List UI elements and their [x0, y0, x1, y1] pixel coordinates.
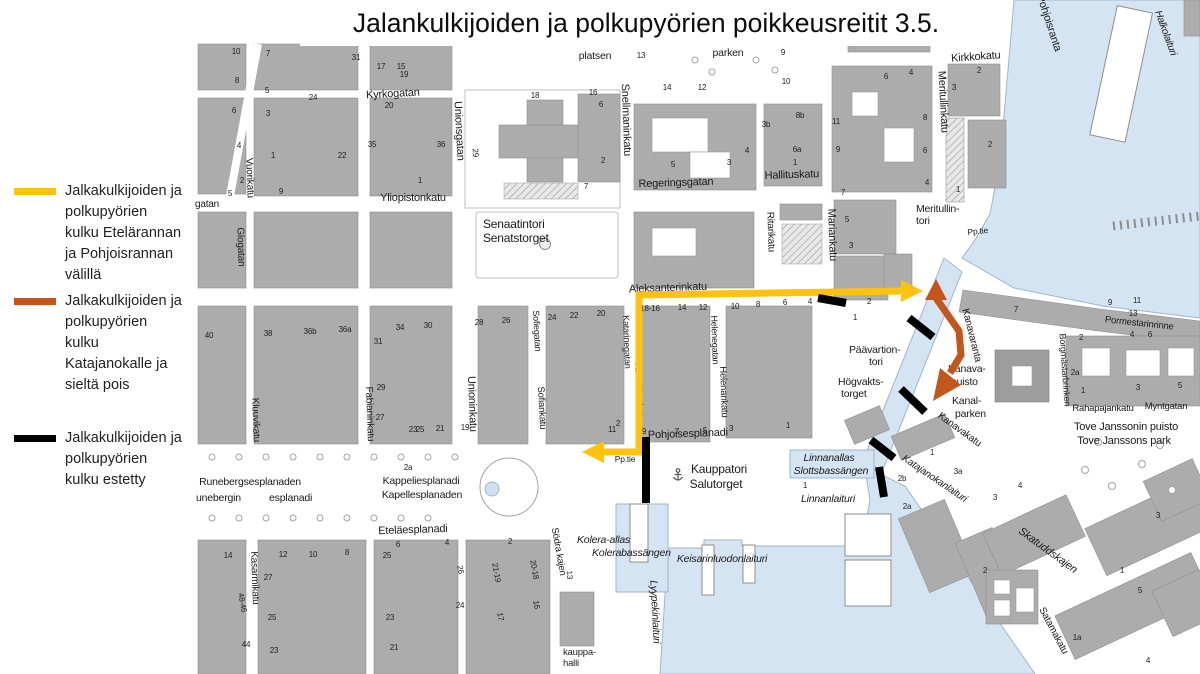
map-label: platsen — [579, 50, 612, 62]
house-number: 10 — [309, 550, 318, 559]
map-label: Keisarinluodonlaituri — [677, 553, 768, 565]
map-label: unebergin — [196, 492, 241, 504]
map-label: Linnanallas — [804, 452, 856, 464]
house-number: 31 — [352, 53, 361, 62]
map-label: Senaatintori — [483, 217, 545, 231]
house-number: 1a — [1073, 633, 1082, 642]
fountain-icon — [485, 482, 499, 496]
legend-swatch-yellow — [14, 188, 56, 195]
map-label: Myntgatan — [1145, 401, 1188, 412]
map-label: kauppa- — [563, 647, 596, 658]
house-number: 27 — [264, 573, 273, 582]
map-label: Rahapajankatu — [1072, 403, 1133, 414]
legend-item-yellow-route: Jalkakulkijoiden ja polkupyörien kulku E… — [14, 181, 195, 286]
map-label: parken — [955, 408, 986, 420]
house-number: 13 — [637, 51, 646, 60]
house-number: 1 — [853, 313, 858, 322]
house-number: 25 — [268, 613, 277, 622]
map-label: Ritarikatu — [764, 212, 776, 253]
map-label: Kolerabassängen — [592, 547, 671, 559]
house-number: 20 — [597, 309, 606, 318]
house-number: 16 — [589, 88, 598, 97]
map-label: parken — [713, 47, 744, 59]
house-number: 11 — [1133, 296, 1142, 305]
map-label: Lyypekinlaituri — [647, 580, 662, 645]
map-label: Fabianinkatu — [363, 386, 376, 441]
legend-swatch-orange — [14, 298, 56, 305]
anchor-icon — [674, 469, 683, 480]
map-label: gatan — [195, 199, 219, 210]
house-number: 25 — [383, 551, 392, 560]
legend-label: Jalkakulkijoiden ja polkupyörien kulku e… — [65, 428, 195, 491]
map-label: Mariankatu — [825, 208, 839, 261]
house-number: 3b — [762, 120, 771, 129]
map-label: Yliopistonkatu — [380, 192, 446, 204]
kauppahalli — [560, 592, 594, 646]
map-label: tori — [869, 356, 883, 368]
page-title: Jalankulkijoiden ja polkupyörien poikkeu… — [353, 8, 939, 39]
map-label: Kolera-allas — [577, 534, 631, 546]
map-label: Södra kajen — [549, 527, 568, 577]
house-number: 22 — [338, 151, 347, 160]
house-number: 12 — [698, 83, 707, 92]
house-number: 14 — [224, 551, 233, 560]
map-label: Pohjoisesplanadi — [648, 427, 728, 442]
map-label: Helenankatu — [717, 366, 730, 418]
house-number: 2a — [404, 463, 413, 472]
map-label: Sofiegatan — [531, 310, 543, 352]
map-label: Vuorikatu — [243, 158, 255, 198]
house-number: 21 — [390, 643, 399, 652]
map-label: Kauppatori — [691, 462, 747, 476]
house-number: 12 — [279, 550, 288, 559]
house-number: 2a — [1071, 368, 1080, 377]
house-number: 3a — [954, 467, 963, 476]
house-number: 21 — [436, 424, 445, 433]
house-number: 9 — [781, 48, 786, 57]
map-label: esplanadi — [269, 492, 312, 504]
house-number: 6 — [783, 298, 788, 307]
house-number: 24 — [548, 313, 557, 322]
house-number: 30 — [424, 321, 433, 330]
map-label: Tove Janssons park — [1077, 435, 1171, 447]
map-label: Katarinegatan — [621, 315, 633, 369]
house-number: 3 — [993, 493, 998, 502]
map-label: Salutorget — [690, 477, 744, 491]
map-label: Glogatan — [234, 227, 246, 266]
house-number: 35 — [368, 140, 377, 149]
house-number: 20 — [385, 101, 394, 110]
house-number: 29 — [471, 148, 481, 158]
house-number: 36a — [339, 325, 352, 334]
map-label: Eteläesplanadi — [378, 523, 448, 537]
house-number: 18 — [531, 91, 540, 100]
map-label: Unionsgatan — [451, 101, 466, 161]
house-number: 1 — [930, 448, 935, 457]
house-number: 4 — [1018, 481, 1023, 490]
house-number: 13 — [1129, 309, 1138, 318]
house-number: 38 — [264, 329, 273, 338]
ritarihuone-park — [782, 224, 822, 264]
map-label: Kapellesplanaden — [382, 489, 463, 501]
house-number: 22 — [570, 311, 579, 320]
map-label: Meritullin- — [916, 203, 960, 215]
map-label: Meritullinkatu — [935, 71, 950, 134]
map-label: Päävartion- — [849, 344, 901, 356]
house-number: 14 — [663, 83, 672, 92]
house-number: 2a — [903, 502, 912, 511]
map-label: Kanal- — [952, 395, 982, 407]
house-number: 4 — [808, 297, 813, 306]
house-number: 4 — [1146, 656, 1151, 665]
house-number: 28 — [475, 318, 484, 327]
house-number: 14 — [678, 303, 687, 312]
house-number: 23 — [386, 613, 395, 622]
map-label: Linnanlaituri — [801, 493, 856, 505]
map-label: Hallituskatu — [764, 168, 819, 182]
house-number: 17 — [377, 62, 386, 71]
map-label: Sofiankatu — [535, 386, 548, 429]
map-label: tori — [916, 215, 930, 227]
map-label: Senatstorget — [483, 231, 550, 245]
map-label: Kappeliesplanadi — [383, 475, 460, 487]
map-label: Slottsbassängen — [794, 465, 869, 477]
house-number: 19 — [400, 70, 409, 79]
house-number: 26 — [502, 316, 511, 325]
map-label: Helenegatan — [709, 315, 721, 364]
map-label: Tove Janssonin puisto — [1074, 421, 1178, 433]
house-number: 23 — [270, 646, 279, 655]
map-label: torget — [841, 388, 867, 400]
house-number: 29 — [377, 383, 386, 392]
house-number: 18-16 — [640, 304, 660, 313]
house-number: 10 — [731, 302, 740, 311]
house-number: 23 — [409, 425, 418, 434]
house-number: 13 — [565, 570, 574, 580]
house-number: 27 — [376, 413, 385, 422]
legend-item-orange-route: Jalkakulkijoiden ja polkupyörien kulku K… — [14, 291, 195, 396]
legend-label: Jalkakulkijoiden ja polkupyörien kulku K… — [65, 291, 195, 396]
house-number: 1 — [803, 481, 808, 490]
map-label: Kirkkokatu — [951, 49, 1001, 64]
title-box: Jalankulkijoiden ja polkupyörien poikkeu… — [300, 0, 992, 46]
house-number: 36b — [304, 327, 317, 336]
map-label: Kluuvikatu — [249, 398, 262, 442]
map-label: halli — [563, 658, 579, 669]
map-label: Snellmaninkatu — [619, 83, 634, 156]
house-number: 19 — [461, 423, 470, 432]
map-label: Högvakts- — [838, 376, 884, 388]
legend-item-blocked: Jalkakulkijoiden ja polkupyörien kulku e… — [14, 428, 195, 491]
house-number: 36 — [437, 140, 446, 149]
house-number: 40 — [205, 331, 214, 340]
house-number: 10 — [782, 77, 791, 86]
house-number: 10 — [232, 47, 241, 56]
legend-swatch-black — [14, 435, 56, 442]
house-number: 24 — [309, 93, 318, 102]
house-number: 2b — [898, 474, 907, 483]
house-number: 26 — [455, 565, 465, 576]
legend: Jalkakulkijoiden ja polkupyörien kulku E… — [0, 0, 195, 674]
house-number: 31 — [374, 337, 383, 346]
house-number: 8b — [796, 111, 805, 120]
house-number: 12 — [699, 303, 708, 312]
house-number: 11 — [832, 117, 841, 126]
house-number: 24 — [456, 601, 465, 610]
house-number: 6a — [793, 145, 802, 154]
house-number: 44 — [242, 640, 251, 649]
house-number: 34 — [396, 323, 405, 332]
map-label: Runebergsesplanaden — [199, 476, 301, 488]
map-label: Kasarmikatu — [248, 551, 261, 605]
legend-label: Jalkakulkijoiden ja polkupyörien kulku E… — [65, 181, 195, 286]
